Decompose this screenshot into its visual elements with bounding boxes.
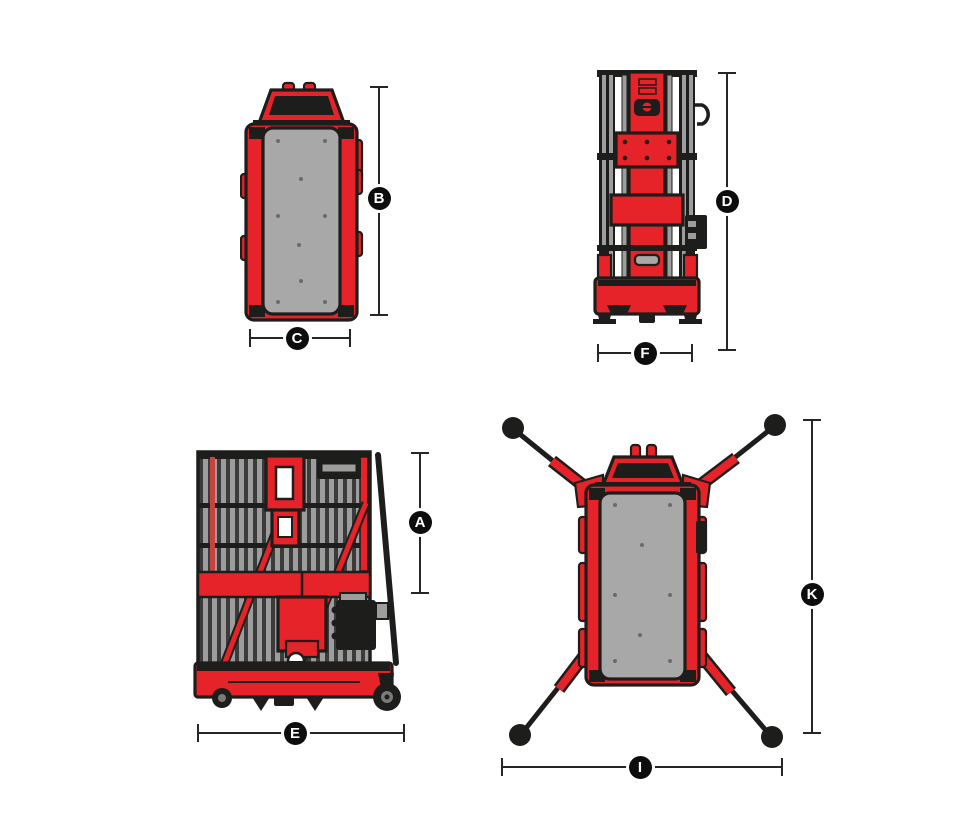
dimension-label-c: C	[286, 327, 309, 350]
view-side-stowed	[190, 445, 410, 720]
foot	[306, 697, 324, 711]
column-slot	[635, 255, 659, 265]
dimension-line-K	[803, 420, 821, 733]
dimension-label-d: D	[716, 190, 739, 213]
dimension-label-k: K	[801, 583, 824, 606]
dimension-lines-overlay	[0, 0, 955, 837]
platform-deck	[263, 128, 340, 314]
machine-top-view	[575, 445, 710, 685]
side-panel	[696, 521, 705, 553]
outrigger-pad	[502, 417, 524, 439]
control-box	[685, 215, 707, 249]
foot	[252, 697, 270, 711]
outrigger-arm-top-right	[691, 414, 786, 492]
dimension-label-b: B	[368, 187, 391, 210]
outrigger-pad	[509, 724, 531, 746]
dimension-label-e: E	[284, 722, 307, 745]
view-top-stowed	[240, 78, 410, 342]
view-top-outriggers	[490, 405, 800, 755]
top-control-box	[317, 458, 361, 479]
outrigger-pad	[764, 414, 786, 436]
dimension-label-f: F	[634, 342, 657, 365]
dimensions-diagram-canvas: B C D F A E K I	[0, 0, 955, 837]
outrigger-pad	[761, 726, 783, 748]
motor-box	[332, 593, 389, 650]
hood-opening	[269, 96, 334, 115]
left-wheel	[212, 688, 232, 708]
dimension-label-a: A	[409, 511, 432, 534]
hook	[695, 105, 708, 124]
mast-head-assembly	[266, 456, 304, 546]
carriage-block	[611, 195, 683, 225]
slide-plate	[616, 133, 678, 167]
dimension-label-i: I	[629, 756, 652, 779]
platform-deck	[600, 493, 685, 679]
tow-hitch	[274, 697, 294, 706]
crossbar	[597, 245, 697, 251]
push-handle	[378, 455, 396, 663]
view-front-mast	[585, 65, 720, 337]
